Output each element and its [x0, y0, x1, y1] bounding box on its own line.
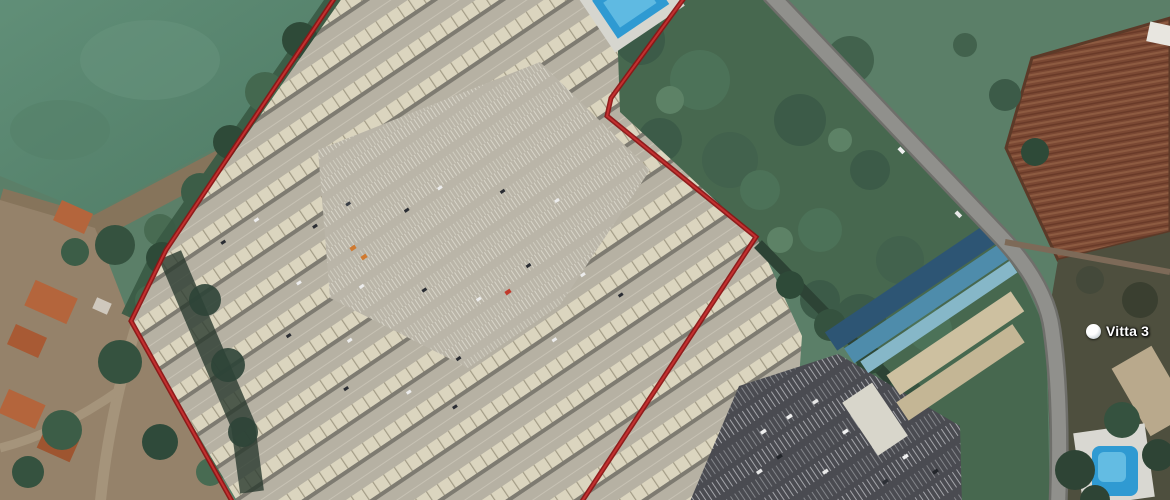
place-label-text: Vitta 3 [1106, 323, 1149, 339]
place-label[interactable]: Vitta 3 [1086, 323, 1149, 339]
map-pin-icon[interactable] [1086, 324, 1101, 339]
satellite-imagery [0, 0, 1170, 500]
satellite-map[interactable]: Vitta 3 [0, 0, 1170, 500]
